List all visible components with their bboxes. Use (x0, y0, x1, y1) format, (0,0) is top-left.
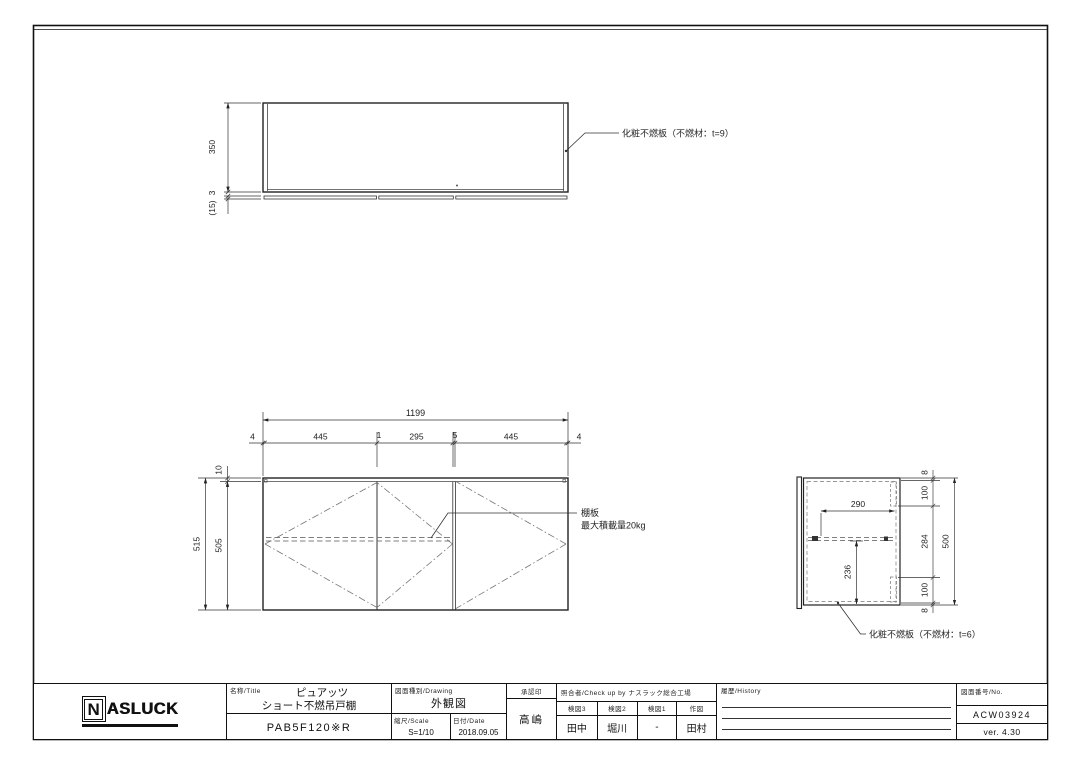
shelf-label: 棚板 (581, 507, 599, 518)
side-view: 290 236 8 100 284 100 8 500 (797, 470, 981, 640)
shelf-load-label: 最大積載量20kg (581, 520, 646, 531)
dim-side-height-total: 500 (941, 534, 951, 548)
history-cell: 履歴/History (716, 684, 956, 739)
front-view-left-dims (198, 466, 261, 610)
check-col-1-name: - (638, 716, 677, 739)
dim-top-offset: (15) (207, 200, 217, 215)
history-row-line (722, 707, 951, 708)
date-value: 2018.09.05 (451, 728, 506, 737)
drawing-label: 図面種別/Drawing (395, 685, 453, 695)
drawing-type: 外観図 (392, 695, 506, 711)
drawing-number: ACW03924 (957, 706, 1047, 724)
check-col-draw-name: 田村 (677, 716, 716, 739)
dim-side-shelf-drop: 236 (843, 565, 853, 579)
dim-front-chain-2: 1 (377, 430, 382, 440)
drawing-canvas: 350 3 (15) 化粧不燃板（不燃材：t=9） 棚板 (0, 0, 1080, 764)
number-cell: 図面番号/No. ACW03924 ver. 4.30 (956, 684, 1047, 739)
check-col-1: 検図1 - (637, 702, 677, 740)
drawing-type-cell: 図面種別/Drawing 外観図 縮尺/Scale S=1/10 日付/Date… (391, 684, 506, 739)
dim-front-chain-3: 295 (409, 432, 423, 442)
history-row-line (722, 729, 951, 730)
number-label: 図面番号/No. (957, 684, 1047, 706)
dim-side-chain-1: 100 (920, 486, 930, 500)
check-col-2: 検図2 堀川 (597, 702, 637, 740)
dim-side-chain-0: 8 (920, 470, 930, 475)
dim-side-chain-4: 8 (920, 608, 930, 613)
scale-label: 縮尺/Scale (394, 715, 429, 725)
check-col-1-header: 検図1 (638, 702, 677, 717)
dim-front-total-width: 1199 (406, 408, 425, 418)
approval-label: 承認印 (507, 684, 556, 699)
logo-underline (82, 724, 179, 726)
dim-top-bottom: 3 (207, 190, 217, 195)
front-view: 棚板 最大積載量20kg 1199 4 445 1 295 5 445 4 (192, 408, 646, 610)
check-col-3-header: 検図3 (557, 702, 597, 717)
check-col-2-name: 堀川 (598, 716, 637, 739)
dim-side-chain-2: 284 (920, 534, 930, 548)
title-block: N ASLUCK 名称/Title ピュアッツ ショート不燃吊戸棚 PAB5F1… (33, 683, 1048, 740)
scale-value: S=1/10 (392, 728, 450, 737)
top-view: 350 3 (15) 化粧不燃板（不燃材：t=9） (207, 103, 734, 216)
date-label: 日付/Date (453, 715, 485, 725)
dim-side-chain-3: 100 (920, 583, 930, 597)
scale-cell: 縮尺/Scale S=1/10 (392, 714, 451, 740)
history-label: 履歴/History (721, 685, 761, 695)
logo-n-box: N (82, 696, 106, 722)
top-view-dim-lines (224, 103, 261, 214)
check-col-2-header: 検図2 (598, 702, 637, 717)
dim-front-top-panel: 10 (214, 465, 224, 475)
top-panel-label: 化粧不燃板（不燃材：t=9） (622, 128, 734, 139)
nasluck-logo: N ASLUCK (82, 696, 179, 726)
check-col-3: 検図3 田中 (557, 702, 597, 740)
logo-text: ASLUCK (107, 700, 179, 719)
dim-front-height-total: 515 (192, 537, 202, 551)
check-cell: 照合者/Check up by ナスラック総合工場 検図3 田中 検図2 堀川 … (556, 684, 716, 739)
front-view-top-dims (249, 412, 581, 476)
check-label: 照合者/Check up by ナスラック総合工場 (557, 684, 716, 702)
dim-front-chain-1: 445 (313, 432, 327, 442)
check-col-3-name: 田中 (557, 716, 597, 739)
product-type: ショート不燃吊戸棚 (227, 698, 391, 713)
side-panel-label: 化粧不燃板（不燃材：t=6） (869, 629, 981, 640)
approval-name: 高嶋 (507, 699, 556, 739)
approval-cell: 承認印 高嶋 (506, 684, 556, 739)
dim-front-chain-6: 4 (577, 432, 582, 442)
history-row-line (722, 718, 951, 719)
dim-front-chain-4: 5 (453, 430, 458, 440)
check-col-draw: 作図 田村 (676, 702, 716, 740)
check-col-draw-header: 作図 (677, 702, 716, 717)
dim-front-chain-5: 445 (504, 432, 518, 442)
version: ver. 4.30 (957, 724, 1047, 739)
dim-side-depth: 290 (851, 499, 865, 509)
dim-front-chain-0: 4 (250, 432, 255, 442)
title-cell: 名称/Title ピュアッツ ショート不燃吊戸棚 PAB5F120※R (226, 684, 391, 739)
logo-cell: N ASLUCK (34, 684, 226, 739)
dim-top-height: 350 (207, 140, 217, 154)
date-cell: 日付/Date 2018.09.05 (451, 714, 506, 740)
dim-front-height-inner: 505 (214, 538, 224, 552)
model-number: PAB5F120※R (227, 714, 391, 740)
